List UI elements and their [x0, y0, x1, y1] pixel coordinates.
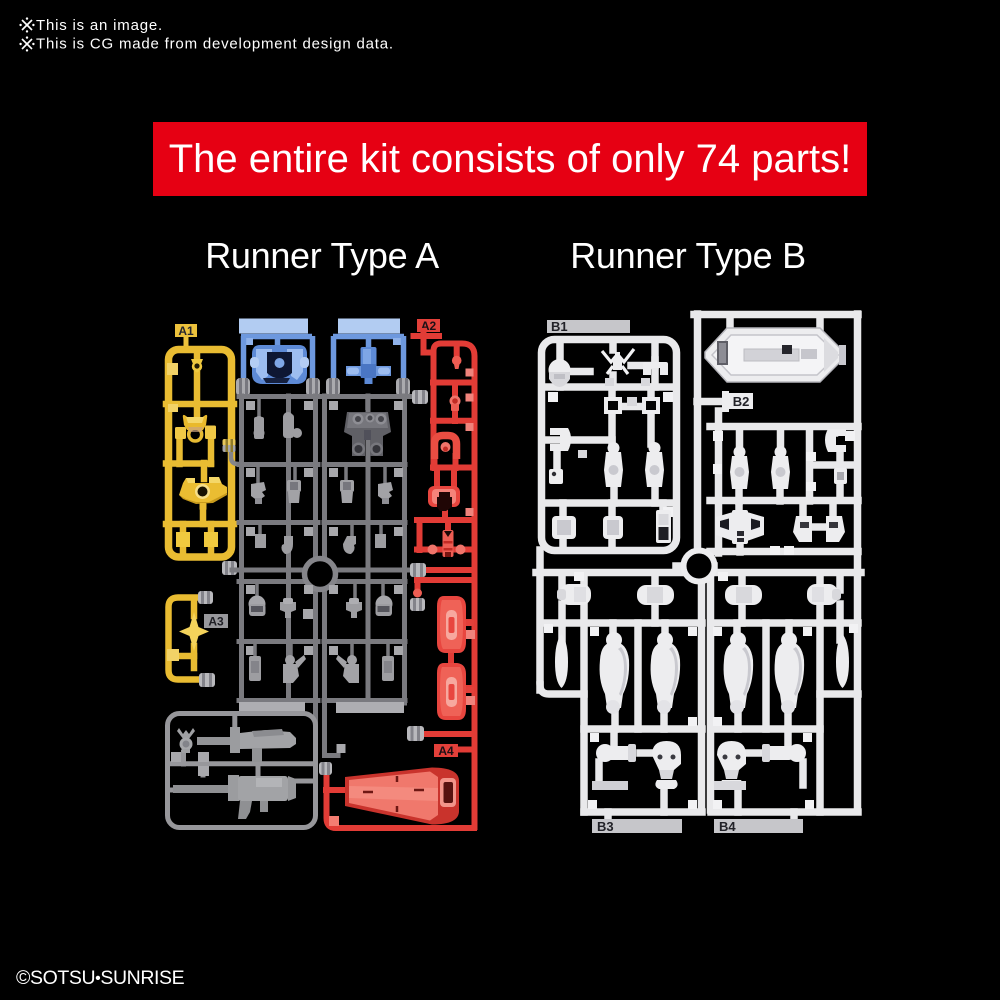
- svg-text:B3: B3: [597, 819, 614, 834]
- svg-text:The entire kit consists of onl: The entire kit consists of only 74 parts…: [169, 137, 852, 181]
- svg-text:©SOTSU•SUNRISE: ©SOTSU•SUNRISE: [16, 967, 185, 989]
- svg-text:A3: A3: [208, 615, 224, 629]
- svg-text:B1: B1: [551, 319, 568, 334]
- svg-text:B4: B4: [719, 819, 736, 834]
- svg-text:A4: A4: [438, 744, 454, 758]
- svg-text:B2: B2: [733, 394, 750, 409]
- svg-text:This is an image.: This is an image.: [36, 17, 163, 34]
- svg-text:Runner Type B: Runner Type B: [570, 235, 806, 276]
- svg-text:This is CG made from developme: This is CG made from development design …: [36, 36, 394, 53]
- svg-text:Runner Type A: Runner Type A: [205, 235, 439, 276]
- svg-text:A1: A1: [178, 324, 194, 338]
